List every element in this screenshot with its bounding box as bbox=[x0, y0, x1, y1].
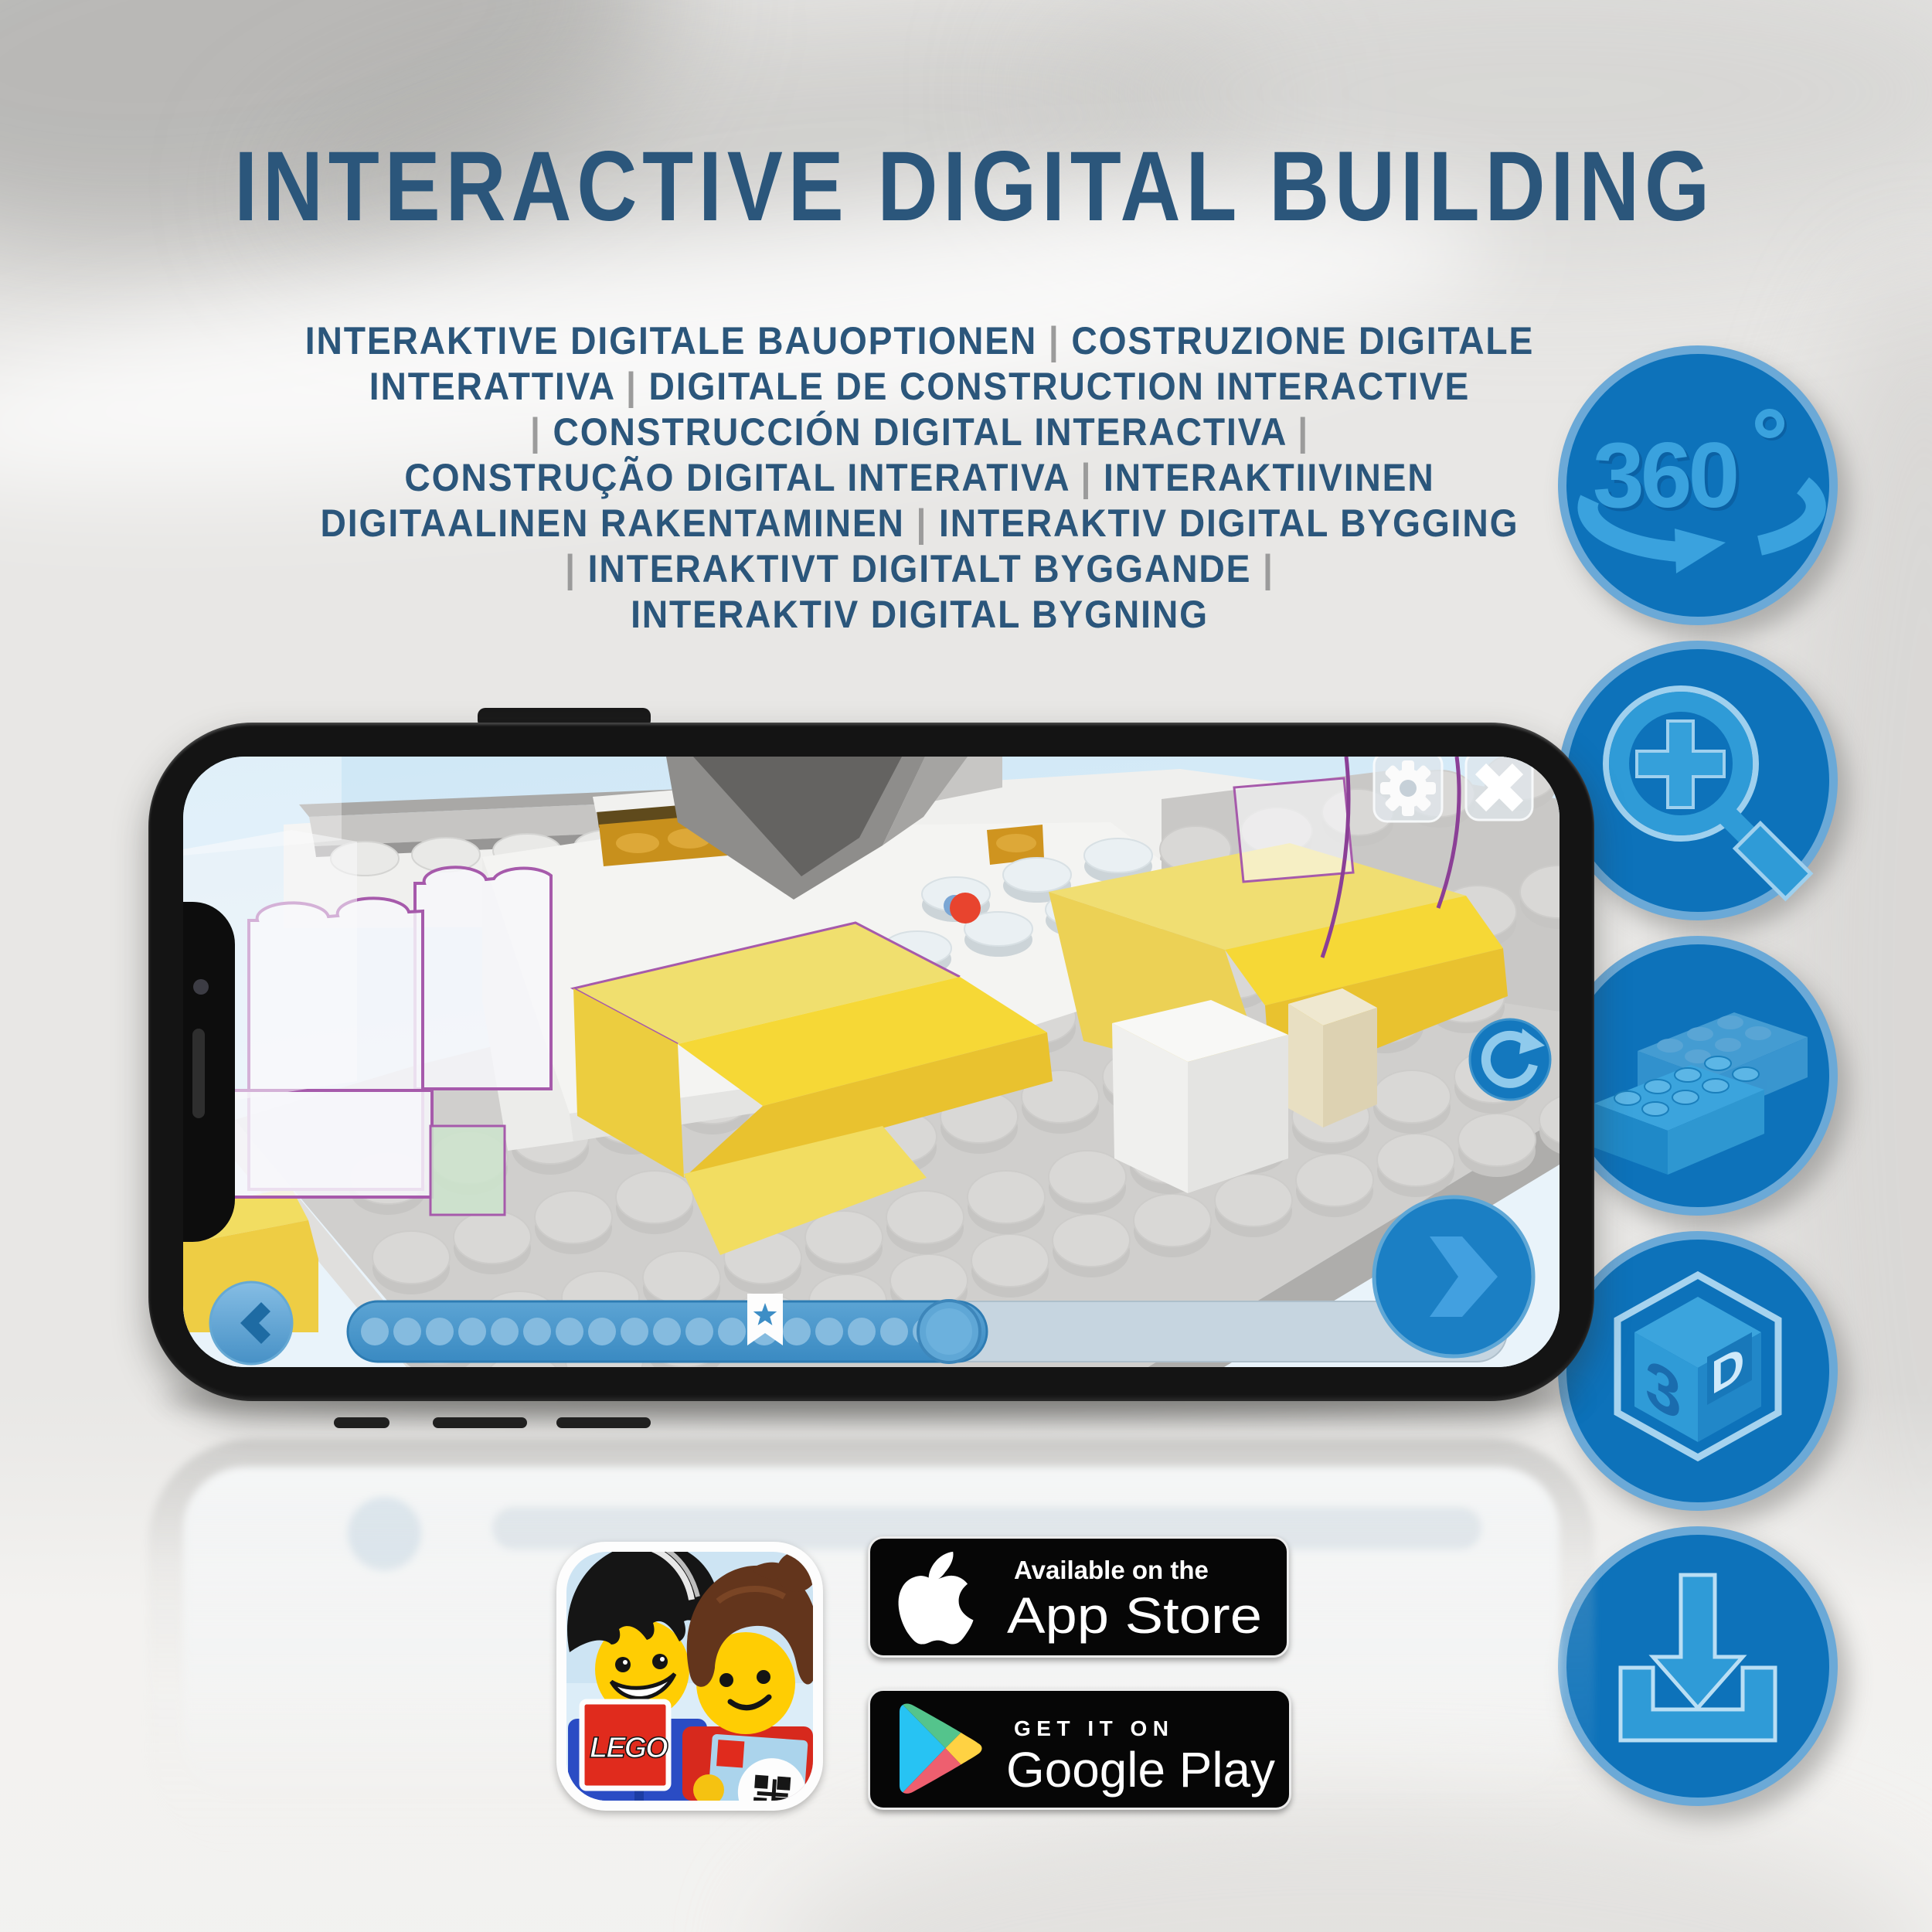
svg-text:360: 360 bbox=[1593, 423, 1736, 527]
svg-text:Google Play: Google Play bbox=[1006, 1742, 1275, 1798]
svg-text:App Store: App Store bbox=[1007, 1587, 1262, 1644]
svg-text:Available on the: Available on the bbox=[1014, 1556, 1209, 1584]
svg-text:GET IT ON: GET IT ON bbox=[1014, 1716, 1168, 1740]
svg-text:LEGO: LEGO bbox=[590, 1732, 668, 1764]
